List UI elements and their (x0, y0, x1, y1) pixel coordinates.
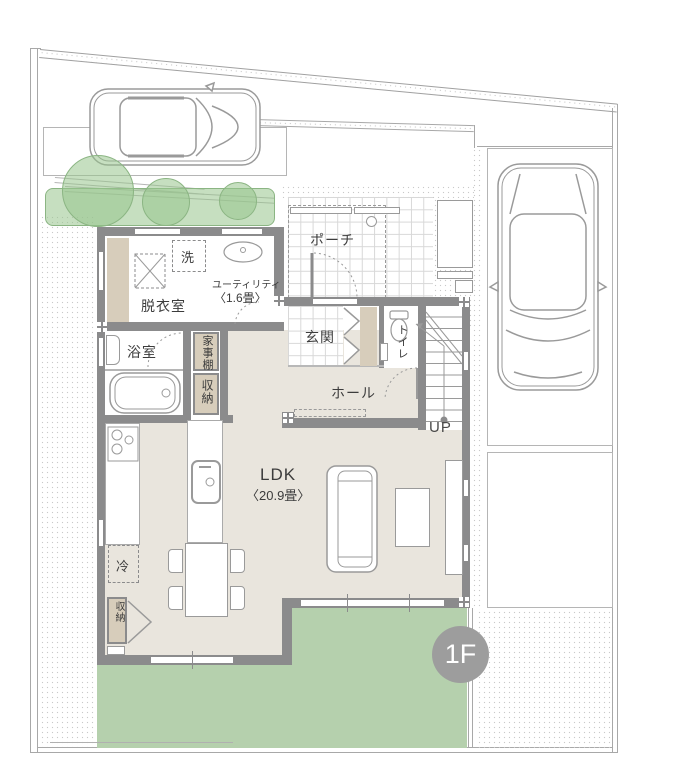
tree-large-icon (62, 155, 134, 227)
bath-divider (105, 369, 183, 371)
bath-door-swing (146, 331, 184, 369)
toilet-label: トイレ (394, 324, 410, 360)
tree-small-icon (219, 182, 257, 220)
dining-chair (168, 586, 183, 610)
household-shelf-label: 家事棚 (199, 335, 215, 371)
front-door-opening (313, 299, 357, 304)
toilet-door-swing (384, 366, 420, 402)
parking-space-side-2 (487, 452, 613, 608)
dining-table (185, 543, 228, 617)
car-top-icon (88, 84, 264, 170)
window-bath-left (99, 338, 103, 366)
gravel-strip-right (472, 148, 482, 610)
up-label: UP (429, 419, 452, 436)
exterior-step (437, 271, 473, 279)
site-boundary-left-outer (30, 48, 31, 752)
floor-badge[interactable]: 1F (432, 626, 489, 683)
dressing-room-label: 脱衣室 (141, 296, 186, 316)
entrance-counter (360, 307, 377, 366)
tree-medium-icon (142, 178, 190, 226)
gravel-strip-left (40, 215, 96, 747)
window-ldk-right-1 (464, 480, 468, 496)
post-marker (274, 296, 285, 307)
dining-chair (230, 549, 245, 573)
wall-porch-entrance (282, 297, 470, 306)
window-dressing-top (135, 229, 180, 234)
wall-utility-right (274, 227, 284, 306)
post-marker (459, 597, 470, 608)
porch-handrail-2 (354, 207, 400, 214)
hall-opening-dashed (294, 409, 366, 417)
ldk-storage-label: 収納 (111, 601, 126, 623)
lawn-right (292, 608, 467, 748)
island-sink (191, 460, 221, 504)
site-boundary-right-outer (617, 104, 618, 752)
hall-storage-label: 収納 (199, 379, 216, 405)
entrance-label: 玄関 (305, 327, 335, 347)
wall-step (282, 598, 292, 665)
tv-board (445, 460, 463, 575)
floor-plan-1f: ポーチ 洗 (0, 0, 674, 780)
fence-connector (474, 125, 475, 148)
parking-fence-line (477, 146, 613, 147)
window-tick-2 (409, 594, 410, 612)
porch-downlight (366, 216, 377, 227)
window-ldk-right-2 (464, 545, 468, 561)
lawn-left (97, 665, 292, 748)
porch-handrail-1 (290, 207, 352, 214)
site-boundary-bottom-outer (30, 752, 618, 753)
car-side-icon (492, 162, 604, 394)
washer-box (134, 253, 166, 289)
utility-sink (222, 240, 264, 264)
stove-icon (107, 426, 139, 462)
window-ldk-left (99, 520, 103, 546)
wall-hall-ldk (282, 418, 418, 428)
window-living-south (300, 599, 445, 607)
exterior-unit (455, 280, 473, 293)
window-storage-south (107, 646, 125, 655)
shoe-cabinet (342, 306, 362, 366)
window-tick-3 (192, 651, 193, 669)
fridge-label: 冷 (116, 556, 130, 575)
bathtub (109, 372, 181, 414)
wall-bath-right (183, 331, 191, 415)
gravel-bottom-right (477, 610, 614, 748)
exterior-cabinet (437, 200, 473, 268)
floor-badge-text: 1F (445, 639, 477, 670)
ldk-storage-door (127, 600, 153, 644)
window-stair-right (464, 352, 468, 370)
utility-door-swing (233, 300, 261, 326)
wall-right (462, 297, 470, 608)
stair-cut-lines (426, 306, 462, 430)
bath-vanity (106, 335, 120, 365)
front-door-swing (310, 251, 360, 301)
hall-label: ホール (331, 383, 376, 403)
post-marker (283, 413, 294, 424)
site-boundary-left-inner (37, 48, 38, 752)
laundry-label: 洗 (181, 247, 195, 266)
porch-label: ポーチ (310, 230, 355, 250)
window-tick-1 (347, 594, 348, 612)
toilet-basin (380, 343, 388, 361)
sofa (326, 465, 378, 573)
dining-chair (168, 549, 183, 573)
coffee-table (395, 488, 430, 547)
dining-chair (230, 586, 245, 610)
ldk-label: LDK (260, 465, 296, 485)
wall-closet-right (220, 331, 228, 423)
window-utility-top (222, 229, 262, 234)
dressing-counter (107, 238, 129, 322)
lawn-edge-line (50, 742, 233, 743)
ldk-size-label: 〈20.9畳〉 (246, 485, 310, 504)
window-dressing-left (99, 252, 103, 290)
wall-left (97, 227, 105, 665)
